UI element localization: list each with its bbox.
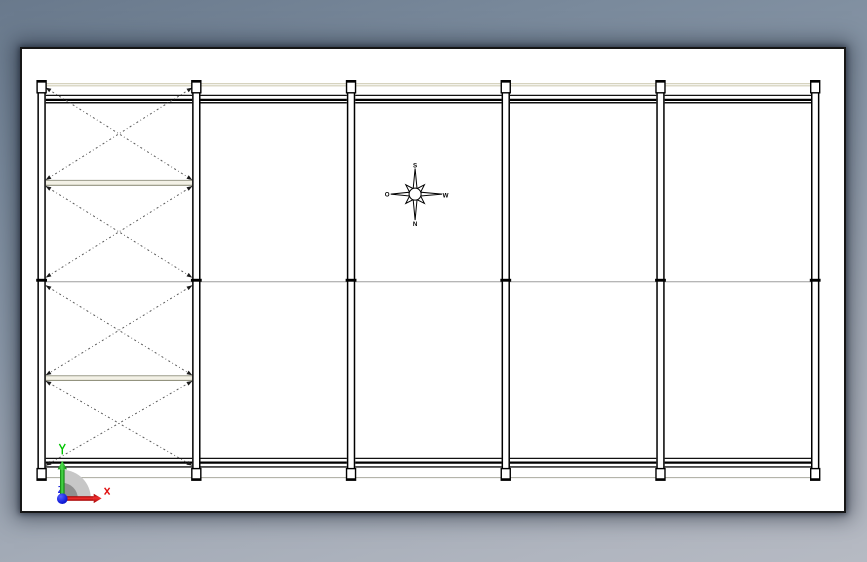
svg-text:S: S [413,162,417,169]
svg-text:W: W [443,192,449,199]
svg-text:O: O [385,192,390,199]
svg-text:N: N [413,221,418,228]
